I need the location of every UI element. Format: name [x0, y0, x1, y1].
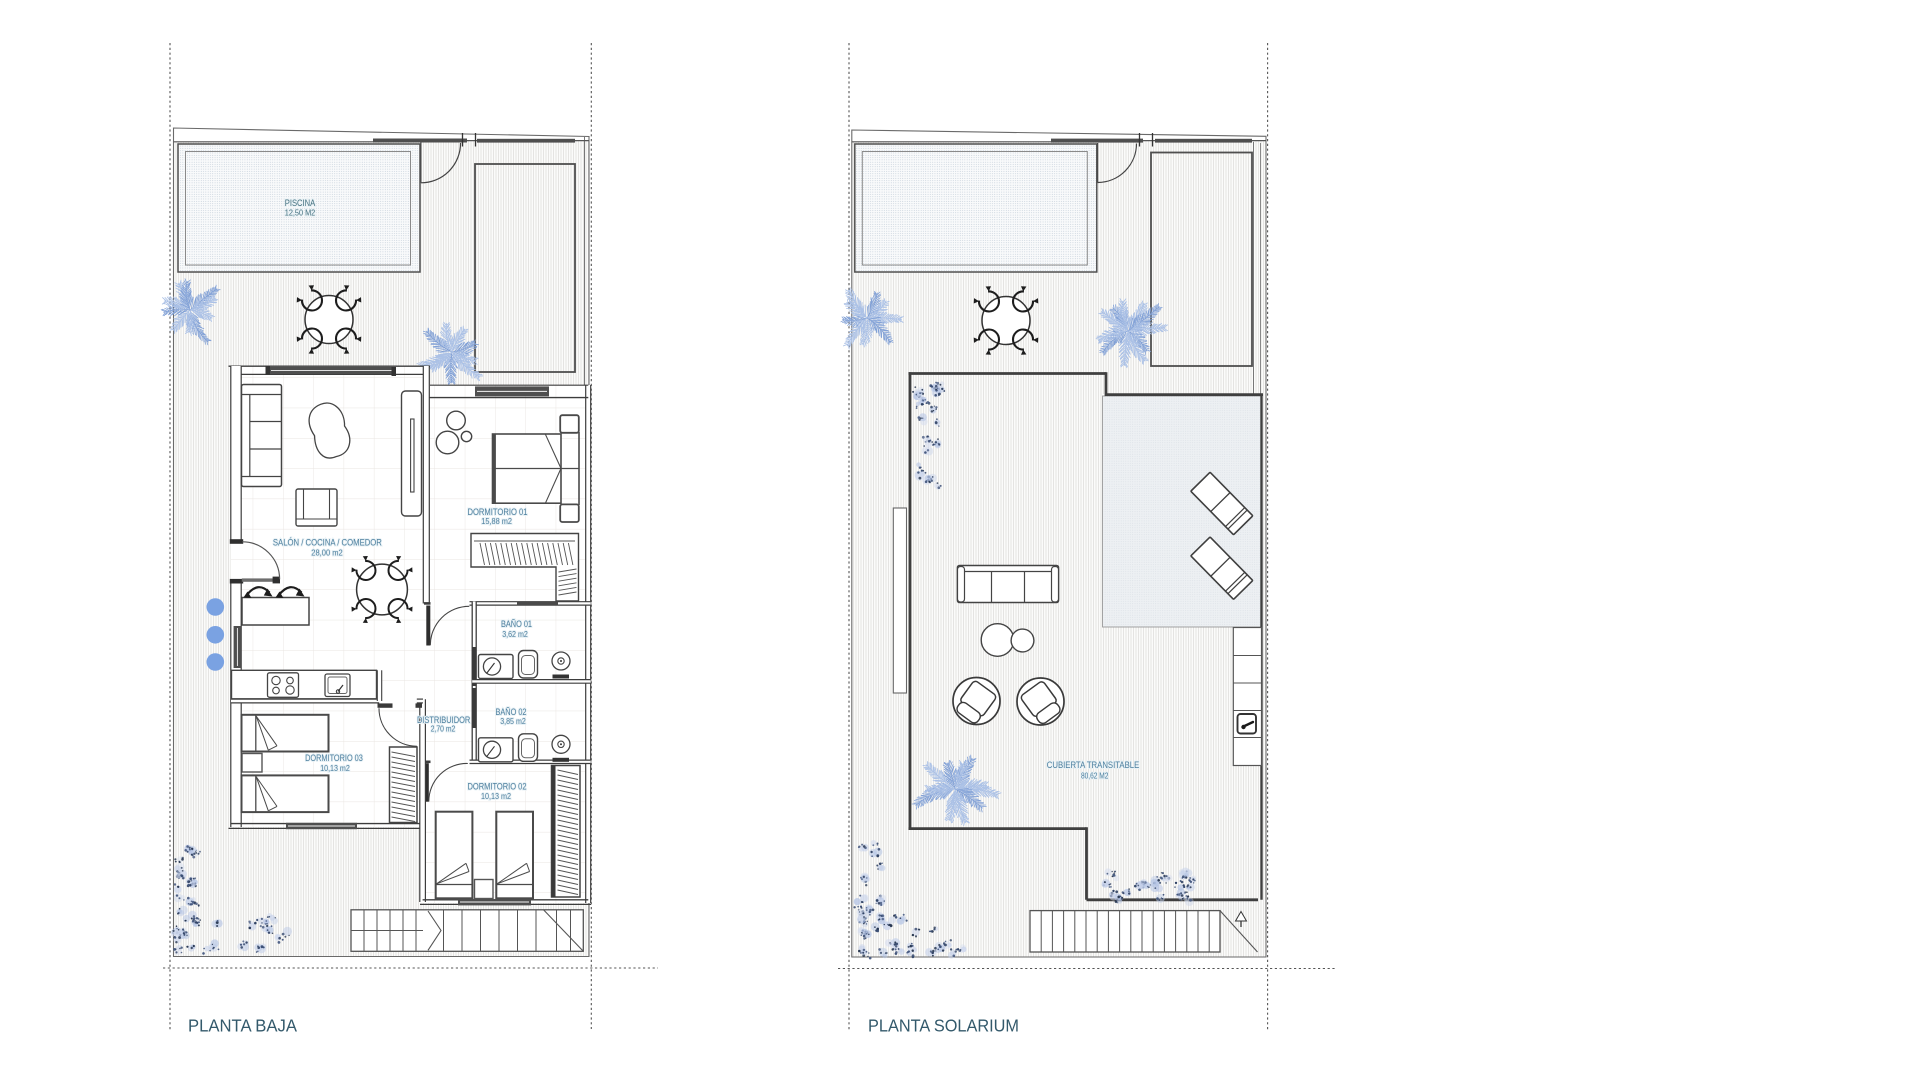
svg-text:PLANTA SOLARIUM: PLANTA SOLARIUM	[868, 1016, 1019, 1036]
svg-text:BAÑO 01: BAÑO 01	[501, 619, 532, 629]
svg-text:DORMITORIO 03: DORMITORIO 03	[305, 753, 363, 763]
svg-text:12,50 M2: 12,50 M2	[285, 208, 316, 218]
svg-text:3,85 m2: 3,85 m2	[500, 716, 526, 726]
svg-text:28,00 m2: 28,00 m2	[311, 547, 343, 557]
svg-text:10,13 m2: 10,13 m2	[320, 763, 350, 773]
svg-text:DORMITORIO 02: DORMITORIO 02	[468, 782, 527, 792]
svg-text:2,70 m2: 2,70 m2	[431, 724, 456, 734]
svg-text:SALÓN / COCINA / COMEDOR: SALÓN / COCINA / COMEDOR	[273, 538, 382, 548]
svg-text:15,88 m2: 15,88 m2	[481, 516, 512, 526]
svg-text:CUBIERTA TRANSITABLE: CUBIERTA TRANSITABLE	[1047, 760, 1140, 770]
svg-text:3,62 m2: 3,62 m2	[502, 629, 528, 639]
svg-text:PLANTA BAJA: PLANTA BAJA	[188, 1016, 297, 1036]
svg-text:80,62 M2: 80,62 M2	[1081, 771, 1109, 781]
svg-text:10,13 m2: 10,13 m2	[481, 791, 511, 801]
svg-text:PISCINA: PISCINA	[285, 198, 316, 208]
